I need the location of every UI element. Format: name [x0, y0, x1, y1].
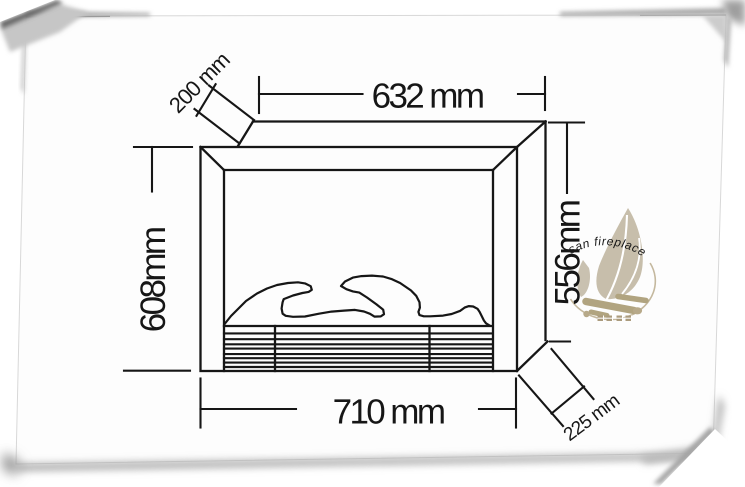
- svg-text:710 mm: 710 mm: [333, 392, 444, 431]
- svg-text:608mm: 608mm: [134, 228, 173, 332]
- svg-text:556mm: 556mm: [549, 201, 588, 305]
- svg-text:632 mm: 632 mm: [372, 77, 483, 116]
